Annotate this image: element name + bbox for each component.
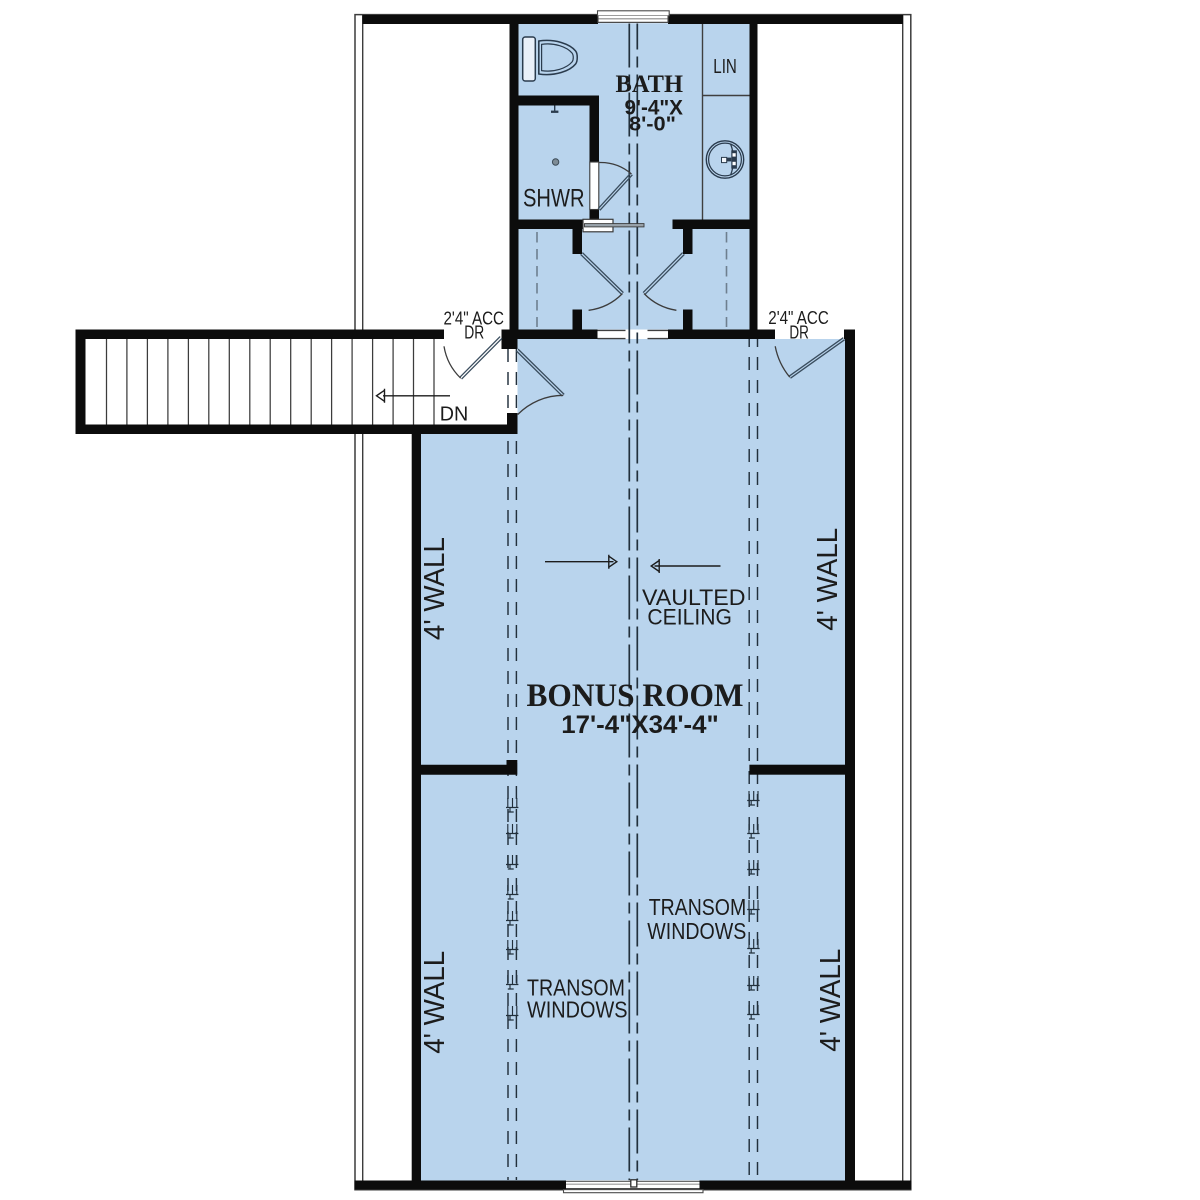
svg-text:SHWR: SHWR xyxy=(523,185,585,213)
svg-text:4' WALL: 4' WALL xyxy=(419,537,451,640)
svg-text:17'-4"X34'-4": 17'-4"X34'-4" xyxy=(561,711,719,739)
svg-text:4' WALL: 4' WALL xyxy=(419,951,451,1054)
svg-text:4' WALL: 4' WALL xyxy=(812,528,844,631)
svg-text:WINDOWS: WINDOWS xyxy=(647,918,746,944)
svg-text:BATH: BATH xyxy=(616,69,684,98)
svg-text:TRANSOM: TRANSOM xyxy=(649,894,747,920)
svg-text:DN: DN xyxy=(440,403,469,426)
svg-text:LIN: LIN xyxy=(713,56,737,78)
svg-text:4' WALL: 4' WALL xyxy=(815,949,847,1052)
svg-text:WINDOWS: WINDOWS xyxy=(527,996,628,1022)
svg-text:8'-0": 8'-0" xyxy=(629,113,676,135)
svg-text:CEILING: CEILING xyxy=(647,605,732,630)
svg-text:BONUS ROOM: BONUS ROOM xyxy=(527,678,744,714)
svg-text:DR: DR xyxy=(464,322,484,343)
svg-text:DR: DR xyxy=(789,322,809,343)
